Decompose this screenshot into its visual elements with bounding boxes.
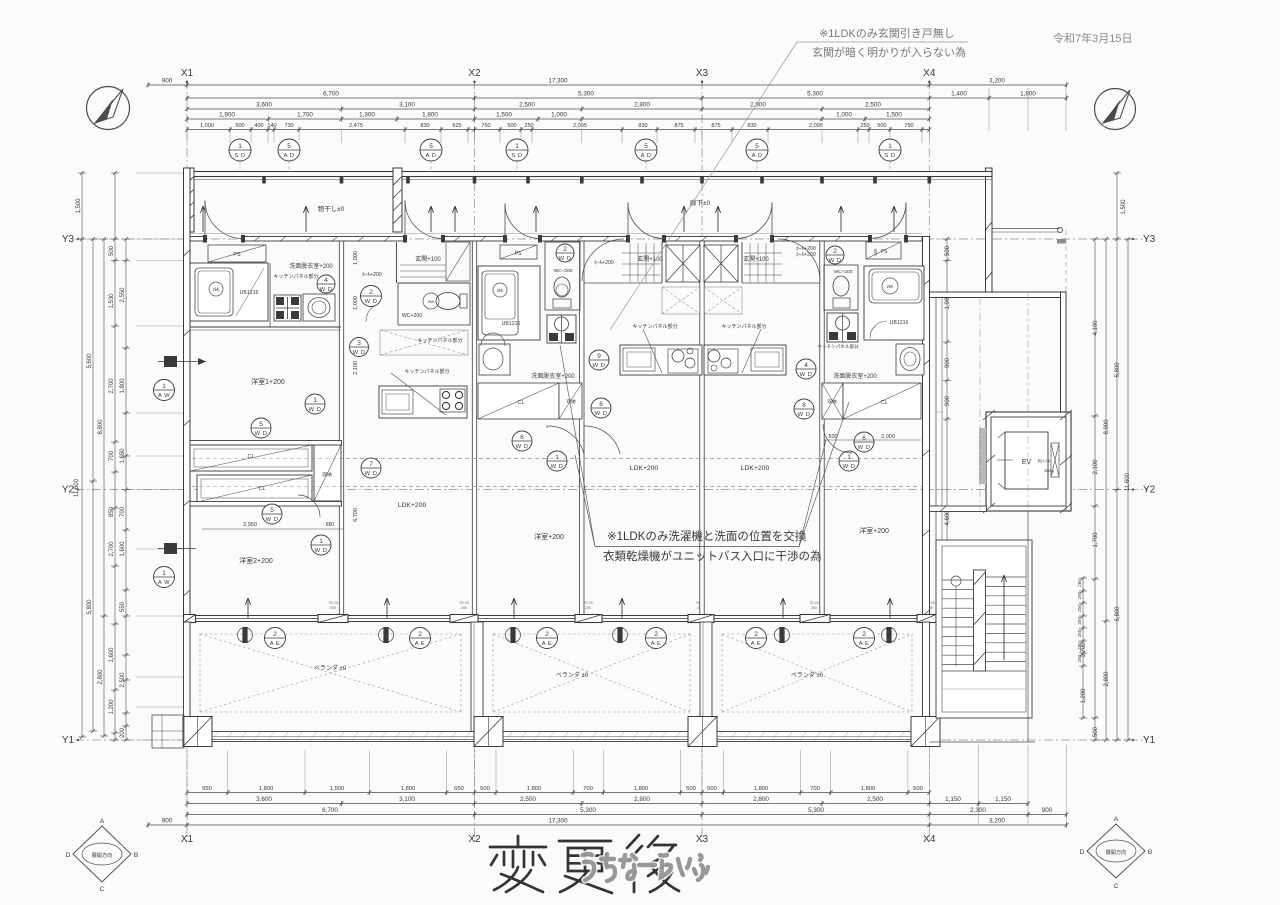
svg-text:1,150: 1,150: [945, 796, 961, 803]
svg-text:400: 400: [254, 123, 263, 129]
svg-text:1,150: 1,150: [995, 796, 1011, 803]
svg-text:8: 8: [802, 402, 806, 409]
svg-text:140: 140: [267, 123, 276, 129]
svg-text:1,800: 1,800: [861, 786, 876, 792]
svg-text:B: B: [134, 852, 138, 859]
svg-text:CL: CL: [517, 400, 524, 406]
svg-text:500: 500: [913, 786, 923, 792]
svg-text:250: 250: [524, 123, 533, 129]
svg-text:700: 700: [109, 450, 115, 461]
svg-text:1: 1: [888, 143, 892, 150]
svg-text:4: 4: [804, 362, 808, 369]
svg-text:250: 250: [1077, 604, 1082, 612]
svg-text:収納: 収納: [322, 471, 332, 478]
svg-text:UB1216: UB1216: [890, 320, 909, 326]
svg-text:A E: A E: [270, 641, 281, 647]
svg-text:X2: X2: [468, 834, 481, 845]
svg-text:2: 2: [273, 631, 277, 638]
svg-text:3,200: 3,200: [989, 817, 1005, 824]
svg-text:LDK+200: LDK+200: [741, 465, 770, 472]
svg-text:D: D: [66, 852, 71, 859]
svg-text:X1: X1: [181, 68, 194, 79]
svg-text:2,475: 2,475: [349, 123, 363, 129]
svg-text:5,800: 5,800: [1115, 362, 1121, 378]
svg-text:2,095: 2,095: [573, 123, 587, 129]
svg-text:W D: W D: [843, 464, 856, 470]
svg-text:Y3: Y3: [62, 234, 75, 245]
svg-text:1,800: 1,800: [754, 786, 769, 792]
svg-text:玄関が暗く明かりが入らない為: 玄関が暗く明かりが入らない為: [812, 45, 966, 59]
svg-text:ﾎｰﾙ+200: ﾎｰﾙ+200: [362, 271, 382, 278]
svg-text:1: 1: [162, 383, 166, 390]
svg-text:展開方向: 展開方向: [1106, 848, 1127, 856]
svg-text:250: 250: [585, 606, 591, 610]
svg-text:ﾎｰﾙ+200: ﾎｰﾙ+200: [796, 245, 816, 252]
svg-text:5,800: 5,800: [87, 599, 93, 615]
svg-text:3,200: 3,200: [989, 77, 1005, 84]
svg-text:625: 625: [452, 123, 461, 129]
svg-text:11,600: 11,600: [74, 478, 80, 497]
svg-text:830: 830: [638, 123, 647, 129]
svg-text:850: 850: [326, 522, 335, 528]
svg-text:キッチンパネル部分: キッチンパネル部分: [632, 323, 677, 330]
svg-text:X3: X3: [696, 68, 709, 79]
svg-text:W D: W D: [353, 350, 366, 356]
svg-text:1,000: 1,000: [836, 111, 852, 118]
svg-text:1,300: 1,300: [359, 111, 375, 118]
svg-text:500: 500: [945, 245, 951, 256]
svg-text:380kg: 380kg: [1044, 469, 1054, 473]
svg-text:2,100: 2,100: [353, 361, 359, 375]
svg-text:1,500: 1,500: [76, 198, 82, 214]
svg-text:キッチンパネル部分: キッチンパネル部分: [273, 273, 318, 280]
svg-text:700: 700: [120, 506, 126, 517]
svg-text:※1LDKのみ洗濯機と洗面の位置を交換: ※1LDKのみ洗濯機と洗面の位置を交換: [607, 529, 807, 543]
svg-text:X4: X4: [923, 68, 936, 79]
svg-text:250: 250: [1077, 629, 1082, 637]
svg-text:CL: CL: [258, 486, 265, 492]
svg-text:洋室+200: 洋室+200: [859, 526, 889, 535]
svg-text:250: 250: [1077, 591, 1082, 599]
svg-text:S D: S D: [511, 153, 522, 159]
svg-text:WC+200: WC+200: [834, 269, 853, 275]
svg-text:衣類乾燥機がユニットバス入口に干渉の為: 衣類乾燥機がユニットバス入口に干渉の為: [603, 549, 822, 563]
svg-text:1,650: 1,650: [120, 448, 126, 464]
svg-text:500: 500: [109, 245, 115, 256]
svg-text:C: C: [100, 886, 105, 893]
svg-text:250: 250: [461, 606, 467, 610]
svg-text:1,000: 1,000: [551, 111, 567, 118]
svg-text:1,200: 1,200: [1081, 688, 1087, 704]
svg-text:EV: EV: [1022, 459, 1032, 466]
svg-text:6,700: 6,700: [322, 807, 338, 814]
svg-text:1: 1: [847, 454, 851, 461]
svg-text:W D: W D: [595, 411, 608, 417]
svg-text:W D: W D: [365, 299, 378, 305]
svg-text:Y2: Y2: [1143, 485, 1156, 496]
svg-text:5: 5: [429, 143, 433, 150]
svg-text:収納: 収納: [566, 398, 576, 405]
svg-text:W D: W D: [559, 256, 572, 262]
svg-text:PS: PS: [881, 249, 888, 255]
svg-text:6: 6: [862, 435, 866, 442]
svg-text:75 25: 75 25: [328, 601, 338, 605]
svg-text:900: 900: [945, 357, 951, 368]
svg-text:2,500: 2,500: [520, 796, 536, 803]
svg-text:4,600: 4,600: [945, 510, 951, 526]
svg-text:250: 250: [1077, 579, 1082, 587]
svg-text:250: 250: [1077, 642, 1082, 650]
svg-text:4: 4: [324, 277, 328, 284]
svg-text:250: 250: [811, 606, 817, 610]
svg-text:UB1216: UB1216: [240, 290, 259, 296]
svg-text:500: 500: [235, 123, 244, 129]
svg-text:約(1,25): 約(1,25): [1038, 458, 1051, 463]
svg-text:1,800: 1,800: [259, 786, 274, 792]
svg-text:1,000: 1,000: [200, 123, 214, 129]
svg-text:3,600: 3,600: [256, 796, 272, 803]
svg-text:2,800: 2,800: [634, 101, 650, 108]
svg-text:5,600: 5,600: [87, 353, 93, 369]
svg-text:洗面脱衣室+200: 洗面脱衣室+200: [531, 372, 575, 380]
svg-text:2kh: 2kh: [887, 284, 894, 289]
svg-text:WC+200: WC+200: [402, 313, 422, 319]
svg-text:900: 900: [162, 817, 173, 824]
svg-text:5,300: 5,300: [580, 807, 596, 814]
svg-text:2,700: 2,700: [109, 378, 115, 394]
svg-text:950: 950: [202, 786, 212, 792]
svg-text:2,500: 2,500: [519, 101, 535, 108]
svg-text:1,500: 1,500: [496, 111, 512, 118]
svg-text:Y1: Y1: [62, 735, 75, 746]
svg-text:500: 500: [707, 786, 717, 792]
svg-text:A E: A E: [651, 641, 662, 647]
svg-text:850: 850: [109, 506, 115, 517]
svg-text:1,000: 1,000: [353, 251, 359, 265]
svg-text:8,900: 8,900: [1104, 419, 1110, 435]
svg-text:2,700: 2,700: [109, 541, 115, 557]
svg-text:250: 250: [860, 123, 869, 129]
svg-text:1,600: 1,600: [120, 541, 126, 557]
svg-text:A: A: [100, 818, 105, 825]
svg-text:75 25: 75 25: [809, 601, 819, 605]
svg-text:730: 730: [284, 123, 293, 129]
svg-text:2,500: 2,500: [867, 796, 883, 803]
svg-text:洗面脱衣室+200: 洗面脱衣室+200: [289, 262, 333, 270]
svg-text:250: 250: [1077, 617, 1082, 625]
svg-text:ﾎｰﾙ+200: ﾎｰﾙ+200: [594, 259, 614, 266]
svg-text:洋室2+200: 洋室2+200: [239, 556, 273, 565]
svg-text:8,800: 8,800: [98, 419, 104, 435]
svg-text:Y1: Y1: [1143, 735, 1156, 746]
svg-text:A W: A W: [158, 393, 170, 399]
svg-text:2,300: 2,300: [970, 807, 986, 814]
svg-text:1,500: 1,500: [886, 111, 902, 118]
svg-text:6,700: 6,700: [323, 90, 339, 97]
svg-text:W D: W D: [798, 412, 811, 418]
svg-text:キッチンパネル部分: キッチンパネル部分: [721, 323, 766, 330]
svg-text:令和7年3月15日: 令和7年3月15日: [1053, 31, 1132, 45]
svg-text:Y3: Y3: [1143, 234, 1156, 245]
svg-text:2kh: 2kh: [428, 299, 434, 304]
svg-text:1,200: 1,200: [109, 699, 115, 715]
svg-text:75 25: 75 25: [459, 601, 469, 605]
svg-text:6: 6: [520, 434, 524, 441]
svg-text:2,800: 2,800: [634, 796, 650, 803]
svg-text:1: 1: [238, 143, 242, 150]
svg-text:A E: A E: [415, 641, 426, 647]
svg-text:1,800: 1,800: [401, 786, 416, 792]
svg-text:2,100: 2,100: [1093, 459, 1099, 475]
svg-text:650: 650: [454, 786, 464, 792]
svg-text:ベランダ ±0: ベランダ ±0: [314, 664, 347, 672]
svg-text:ベランダ ±0: ベランダ ±0: [791, 671, 824, 679]
svg-text:ベランダ ±0: ベランダ ±0: [556, 671, 589, 679]
svg-text:500: 500: [1093, 726, 1099, 737]
svg-text:1,700: 1,700: [1093, 532, 1099, 548]
svg-text:X3: X3: [696, 834, 709, 845]
svg-text:W D: W D: [551, 464, 564, 470]
svg-text:W D: W D: [593, 363, 606, 369]
svg-text:W D: W D: [255, 431, 268, 437]
svg-text:3,600: 3,600: [256, 101, 272, 108]
svg-text:5,300: 5,300: [578, 90, 594, 97]
svg-text:2: 2: [369, 289, 373, 296]
svg-text:5,300: 5,300: [807, 90, 823, 97]
svg-text:5: 5: [755, 143, 759, 150]
svg-text:玄関+100: 玄関+100: [743, 255, 769, 263]
svg-text:1,800: 1,800: [527, 786, 542, 792]
svg-text:W D: W D: [829, 258, 842, 264]
svg-text:2: 2: [545, 631, 549, 638]
svg-text:D: D: [1080, 849, 1085, 856]
svg-text:A E: A E: [751, 641, 762, 647]
svg-text:17,300: 17,300: [548, 817, 568, 824]
svg-text:W D: W D: [320, 287, 333, 293]
svg-text:200: 200: [120, 727, 126, 738]
svg-text:1,800: 1,800: [422, 111, 438, 118]
svg-text:17,300: 17,300: [548, 77, 568, 84]
svg-text:1,500: 1,500: [330, 786, 345, 792]
svg-text:11,600: 11,600: [1125, 472, 1131, 491]
svg-text:CL: CL: [247, 454, 254, 460]
svg-text:2,500: 2,500: [865, 101, 881, 108]
svg-text:LDK+200: LDK+200: [630, 465, 659, 472]
svg-text:2: 2: [654, 631, 658, 638]
svg-text:5,800: 5,800: [1115, 606, 1121, 622]
svg-text:1: 1: [319, 538, 323, 545]
svg-text:2: 2: [563, 246, 567, 253]
svg-text:830: 830: [747, 123, 756, 129]
svg-text:X2: X2: [468, 68, 481, 79]
svg-text:2,800: 2,800: [753, 796, 769, 803]
svg-text:5: 5: [270, 507, 274, 514]
svg-text:1,700: 1,700: [297, 111, 313, 118]
svg-text:B: B: [1148, 849, 1152, 856]
svg-text:1,500: 1,500: [1121, 199, 1127, 215]
svg-text:2: 2: [862, 631, 866, 638]
svg-text:875: 875: [674, 123, 683, 129]
svg-text:A D: A D: [284, 153, 295, 159]
svg-text:9: 9: [597, 353, 601, 360]
svg-text:S D: S D: [234, 153, 245, 159]
svg-text:5: 5: [644, 143, 648, 150]
svg-text:洗面脱衣室+200: 洗面脱衣室+200: [833, 372, 877, 380]
svg-text:キッチンパネル部分: キッチンパネル部分: [417, 337, 462, 344]
svg-text:WC+200: WC+200: [554, 268, 573, 274]
svg-text:PS: PS: [233, 252, 241, 258]
svg-text:W D: W D: [365, 471, 378, 477]
svg-text:2,500: 2,500: [120, 672, 126, 688]
svg-text:700: 700: [810, 786, 820, 792]
svg-text:500: 500: [507, 123, 516, 129]
svg-text:500: 500: [873, 248, 878, 256]
svg-text:物干し±0: 物干し±0: [318, 204, 345, 213]
svg-text:PS: PS: [515, 251, 522, 257]
svg-text:2kh: 2kh: [497, 288, 504, 293]
svg-text:A E: A E: [859, 641, 870, 647]
svg-text:1: 1: [555, 454, 559, 461]
svg-text:洋室+200: 洋室+200: [534, 532, 564, 541]
svg-text:250: 250: [1077, 654, 1082, 662]
svg-text:2,950: 2,950: [243, 522, 257, 528]
svg-text:2,095: 2,095: [809, 123, 823, 129]
svg-text:※1LDKのみ玄関引き戸無し: ※1LDKのみ玄関引き戸無し: [819, 26, 955, 40]
svg-text:LDK+200: LDK+200: [398, 502, 427, 509]
svg-text:1: 1: [313, 397, 317, 404]
svg-text:1,600: 1,600: [109, 647, 115, 663]
svg-text:W D: W D: [858, 445, 871, 451]
svg-text:2,800: 2,800: [98, 669, 104, 685]
svg-text:X4: X4: [923, 834, 936, 845]
svg-text:Y2: Y2: [62, 485, 75, 496]
svg-text:1,000: 1,000: [353, 296, 359, 310]
svg-text:C: C: [1114, 883, 1119, 890]
svg-text:5: 5: [287, 143, 291, 150]
svg-text:S D: S D: [884, 153, 895, 159]
svg-text:玄関+100: 玄関+100: [415, 255, 441, 263]
svg-text:A D: A D: [426, 153, 437, 159]
svg-text:500: 500: [686, 786, 696, 792]
svg-text:700: 700: [583, 786, 593, 792]
svg-text:2,000: 2,000: [881, 434, 895, 440]
svg-text:250: 250: [330, 606, 336, 610]
svg-text:900: 900: [162, 77, 173, 84]
svg-text:2: 2: [833, 248, 837, 255]
svg-text:900: 900: [945, 395, 951, 406]
svg-text:展開方向: 展開方向: [92, 851, 113, 859]
svg-text:W D: W D: [309, 407, 322, 413]
svg-text:500: 500: [877, 123, 886, 129]
svg-text:洋室1+200: 洋室1+200: [251, 377, 285, 386]
svg-text:A D: A D: [641, 153, 652, 159]
svg-text:A W: A W: [158, 580, 170, 586]
svg-text:900: 900: [1042, 807, 1053, 814]
svg-text:2: 2: [418, 631, 422, 638]
svg-text:2,800: 2,800: [1104, 671, 1110, 687]
svg-text:75 25: 75 25: [583, 601, 593, 605]
svg-text:5: 5: [259, 421, 263, 428]
svg-text:2,550: 2,550: [120, 287, 126, 303]
svg-text:W D: W D: [315, 548, 328, 554]
svg-text:550: 550: [120, 601, 126, 612]
svg-text:2kh: 2kh: [213, 287, 220, 292]
svg-text:W D: W D: [516, 444, 529, 450]
svg-text:UB1216: UB1216: [502, 321, 521, 327]
svg-text:1: 1: [162, 570, 166, 577]
svg-text:875: 875: [711, 123, 720, 129]
svg-text:CL: CL: [880, 400, 887, 406]
svg-text:A E: A E: [542, 641, 553, 647]
svg-text:1,530: 1,530: [109, 293, 115, 309]
svg-text:1,800: 1,800: [634, 786, 649, 792]
svg-text:750: 750: [904, 123, 913, 129]
svg-text:玄関+100: 玄関+100: [637, 255, 663, 263]
svg-text:8: 8: [599, 401, 603, 408]
svg-text:A: A: [1114, 816, 1119, 823]
svg-text:3,100: 3,100: [399, 796, 415, 803]
svg-text:2: 2: [754, 631, 758, 638]
svg-text:A D: A D: [752, 153, 763, 159]
svg-text:1: 1: [515, 143, 519, 150]
svg-text:2,800: 2,800: [750, 101, 766, 108]
svg-text:キッチンパネル部分: キッチンパネル部分: [404, 368, 449, 375]
svg-text:5,300: 5,300: [808, 807, 824, 814]
svg-text:1,800: 1,800: [120, 378, 126, 394]
svg-text:6,700: 6,700: [353, 508, 359, 522]
svg-text:収納: 収納: [827, 398, 837, 405]
svg-text:4,100: 4,100: [1093, 320, 1099, 336]
svg-text:830: 830: [420, 123, 429, 129]
svg-text:1,800: 1,800: [1020, 90, 1036, 97]
svg-text:7: 7: [369, 461, 373, 468]
svg-text:1,900: 1,900: [219, 111, 235, 118]
svg-text:X1: X1: [181, 834, 194, 845]
svg-text:500: 500: [480, 786, 490, 792]
svg-text:750: 750: [481, 123, 490, 129]
svg-text:キッチンパネル部分: キッチンパネル部分: [817, 343, 859, 350]
svg-text:W D: W D: [266, 517, 279, 523]
svg-text:3,100: 3,100: [399, 101, 415, 108]
svg-text:W D: W D: [800, 372, 813, 378]
svg-text:3: 3: [357, 340, 361, 347]
svg-text:1,400: 1,400: [951, 90, 967, 97]
